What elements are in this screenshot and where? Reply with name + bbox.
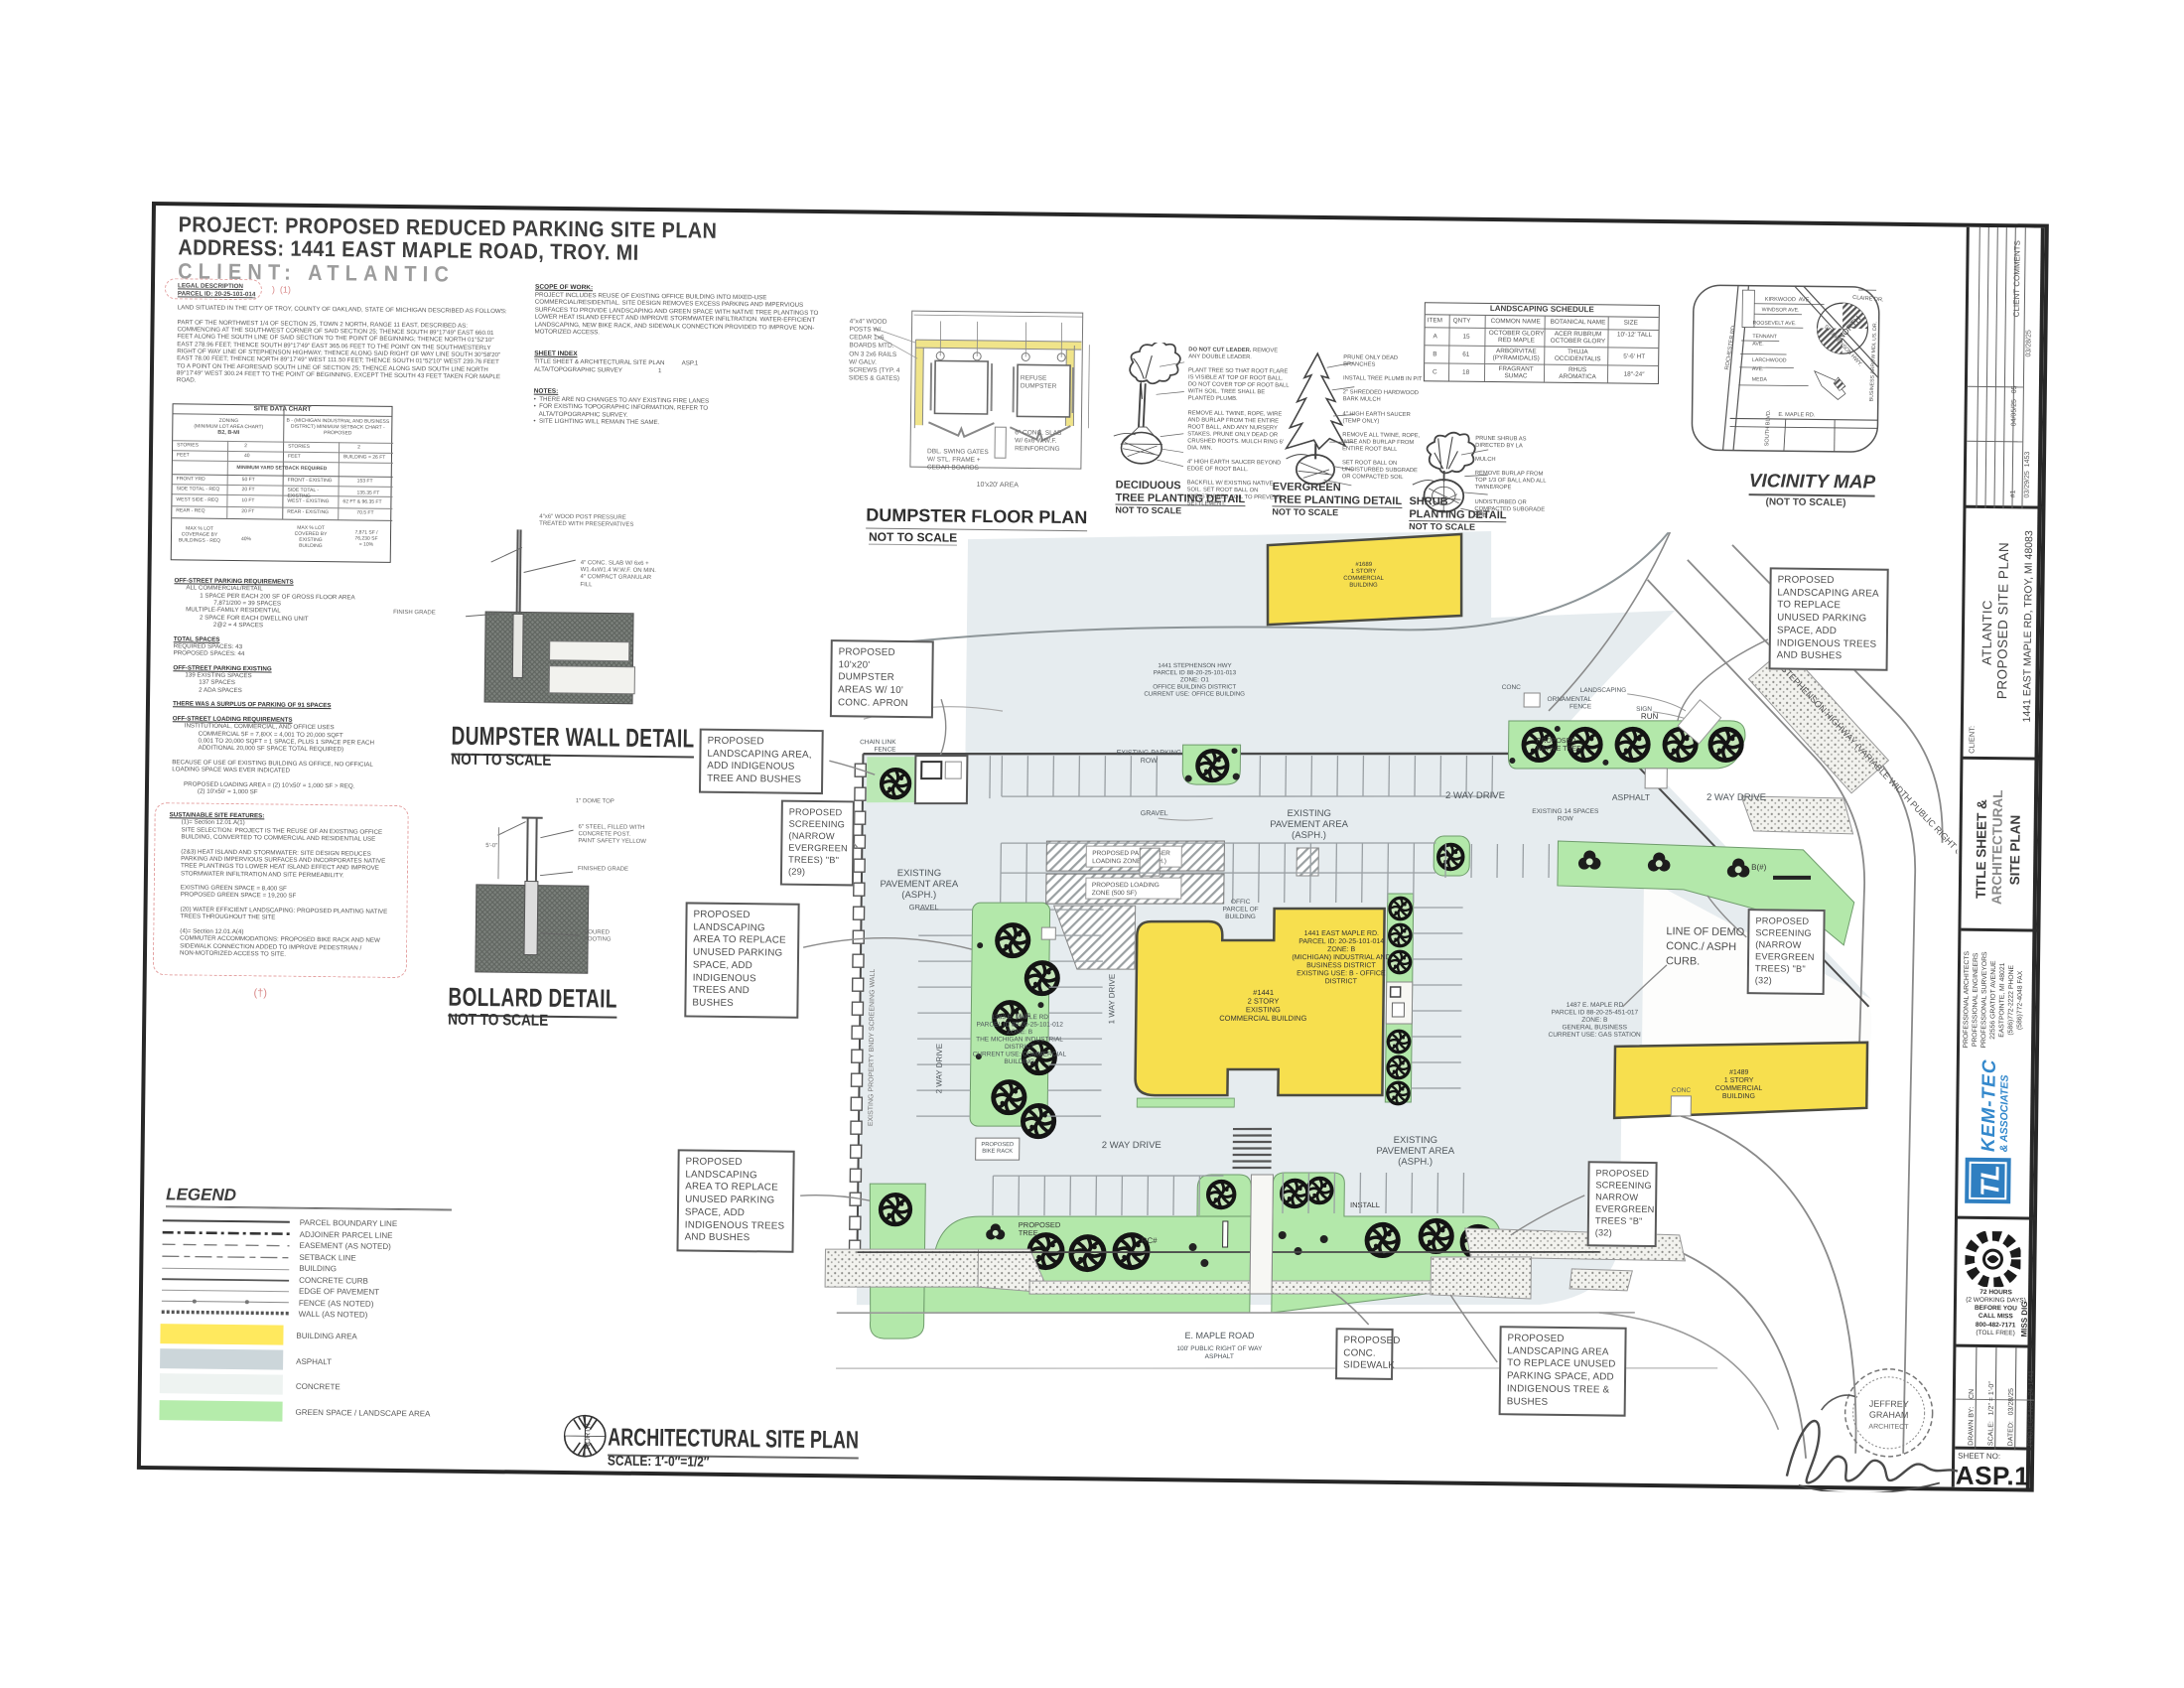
svg-text:INSTALL: INSTALL <box>1350 1200 1380 1209</box>
svg-text:KIRKWOOD AVE.: KIRKWOOD AVE. <box>1765 297 1812 304</box>
svg-text:1441 EAST MAPLE RD.PARCEL ID:: 1441 EAST MAPLE RD.PARCEL ID: 20-25-101-… <box>1292 930 1391 985</box>
svg-text:1 WAY DRIVE: 1 WAY DRIVE <box>1107 974 1117 1025</box>
svg-text:1383 E. MAPLE RDPARCEL ID 88-2: 1383 E. MAPLE RDPARCEL ID 88-20-25-101-0… <box>972 1014 1067 1065</box>
svg-text:RC#: RC# <box>1142 1236 1159 1245</box>
svg-text:NORTH: NORTH <box>583 1423 592 1449</box>
svg-text:E. MAPLE RD.: E. MAPLE RD. <box>1778 412 1816 418</box>
svg-text:100′ PUBLIC RIGHT OF WAY: 100′ PUBLIC RIGHT OF WAY <box>1176 1345 1263 1352</box>
svg-text:SIGN: SIGN <box>1636 706 1652 713</box>
svg-text:PROPOSED: PROPOSED <box>1537 738 1576 745</box>
svg-text:JEFFREY: JEFFREY <box>1869 1399 1909 1409</box>
svg-text:TREE: TREE <box>1019 1228 1038 1237</box>
svg-text:2 WAY DRIVE: 2 WAY DRIVE <box>934 1044 944 1094</box>
svg-text:GRAVEL: GRAVEL <box>909 903 939 912</box>
svg-text:E. MAPLE ROAD: E. MAPLE ROAD <box>1184 1331 1255 1340</box>
svg-text:2 WAY DRIVE: 2 WAY DRIVE <box>1706 792 1766 803</box>
svg-text:PROPOSED LOADING: PROPOSED LOADING <box>1092 882 1160 889</box>
svg-text:ASPHALT: ASPHALT <box>1612 792 1650 802</box>
svg-text:MEDA: MEDA <box>1752 376 1768 382</box>
svg-text:CONC: CONC <box>1502 684 1522 691</box>
svg-text:RUN: RUN <box>1641 712 1659 721</box>
svg-text:WINDSOR AVE.: WINDSOR AVE. <box>1762 307 1800 313</box>
svg-text:B(#): B(#) <box>1751 863 1767 872</box>
svg-text:ZONE (500 SF): ZONE (500 SF) <box>1092 890 1137 897</box>
svg-text:CHAIN LINKFENCE: CHAIN LINKFENCE <box>860 739 896 753</box>
svg-text:GRAVEL: GRAVEL <box>1141 810 1168 817</box>
svg-text:ROOSEVELT AVE.: ROOSEVELT AVE. <box>1752 321 1796 328</box>
svg-text:2 WAY DRIVE: 2 WAY DRIVE <box>1102 1140 1161 1151</box>
svg-text:AVE.: AVE. <box>1752 366 1764 372</box>
svg-text:CONC: CONC <box>1672 1087 1692 1094</box>
svg-text:LARCHWOOD: LARCHWOOD <box>1752 357 1787 363</box>
svg-text:LANDSCAPING: LANDSCAPING <box>1580 687 1627 694</box>
svg-text:NATIVE TREE: NATIVE TREE <box>1537 746 1582 753</box>
svg-text:2 WAY DRIVE: 2 WAY DRIVE <box>1445 790 1505 801</box>
svg-text:ASPHALT: ASPHALT <box>1205 1353 1234 1360</box>
svg-text:TENNANT: TENNANT <box>1752 334 1778 340</box>
svg-text:ARCHITECT: ARCHITECT <box>1868 1424 1909 1431</box>
svg-text:PROPOSEDBIKE RACK: PROPOSEDBIKE RACK <box>981 1142 1014 1155</box>
svg-text:GRAHAM: GRAHAM <box>1869 1410 1909 1420</box>
svg-text:AVE.: AVE. <box>1752 342 1764 348</box>
